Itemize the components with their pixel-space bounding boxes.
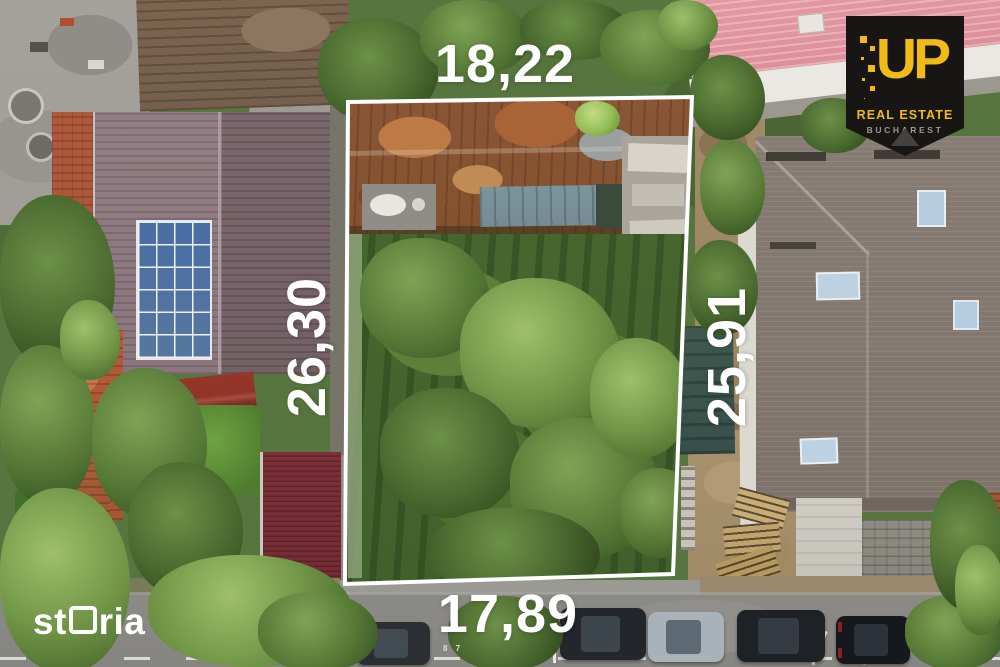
up-logo-tagline: REAL ESTATE bbox=[846, 108, 964, 122]
car-glass bbox=[666, 620, 701, 654]
storia-o-glyph bbox=[69, 606, 97, 634]
up-logo-notch bbox=[891, 128, 919, 146]
parked-car-silver bbox=[648, 612, 724, 662]
aerial-property-photo: 18,22 26,30 25,91 17,89 8 7 stria UP REA… bbox=[0, 0, 1000, 667]
car-glass bbox=[758, 618, 798, 653]
skylight bbox=[816, 272, 860, 301]
yard-clutter bbox=[60, 18, 74, 26]
tree bbox=[658, 0, 718, 50]
taillight bbox=[838, 622, 842, 632]
solar-panel-array bbox=[136, 220, 212, 360]
yard-clutter bbox=[30, 42, 48, 52]
car-glass bbox=[374, 629, 408, 658]
parked-car bbox=[836, 616, 910, 664]
tree bbox=[60, 300, 120, 380]
stall-number: 8 7 bbox=[443, 644, 463, 653]
ac-unit bbox=[797, 13, 825, 35]
skylight bbox=[953, 300, 979, 330]
up-logo-brand: UP bbox=[846, 26, 964, 92]
yard-clutter bbox=[88, 60, 104, 69]
taillight bbox=[838, 648, 842, 658]
plot-boundary bbox=[340, 88, 702, 588]
up-real-estate-logo: UP REAL ESTATE BUCHAREST bbox=[846, 16, 964, 156]
up-logo-banner: UP REAL ESTATE BUCHAREST bbox=[846, 16, 964, 156]
tree bbox=[955, 545, 1000, 635]
dimension-top: 18,22 bbox=[435, 33, 575, 95]
dimension-right: 25,91 bbox=[696, 287, 758, 427]
roof-ridge bbox=[866, 250, 869, 510]
skylight bbox=[800, 437, 839, 464]
dimension-left: 26,30 bbox=[276, 277, 338, 417]
water-tank bbox=[8, 88, 44, 124]
car-glass bbox=[581, 616, 621, 651]
tree bbox=[700, 140, 765, 235]
parked-car bbox=[737, 610, 825, 662]
skylight bbox=[917, 190, 946, 227]
roof-vent bbox=[766, 152, 826, 161]
car-glass bbox=[854, 624, 888, 657]
storia-logo-text: ria bbox=[99, 601, 146, 643]
dimension-bottom: 17,89 bbox=[438, 583, 578, 645]
roof-vent bbox=[770, 242, 816, 249]
storia-logo-text: st bbox=[33, 601, 67, 643]
roof-ridge bbox=[218, 112, 221, 374]
storia-logo: stria bbox=[33, 601, 145, 643]
